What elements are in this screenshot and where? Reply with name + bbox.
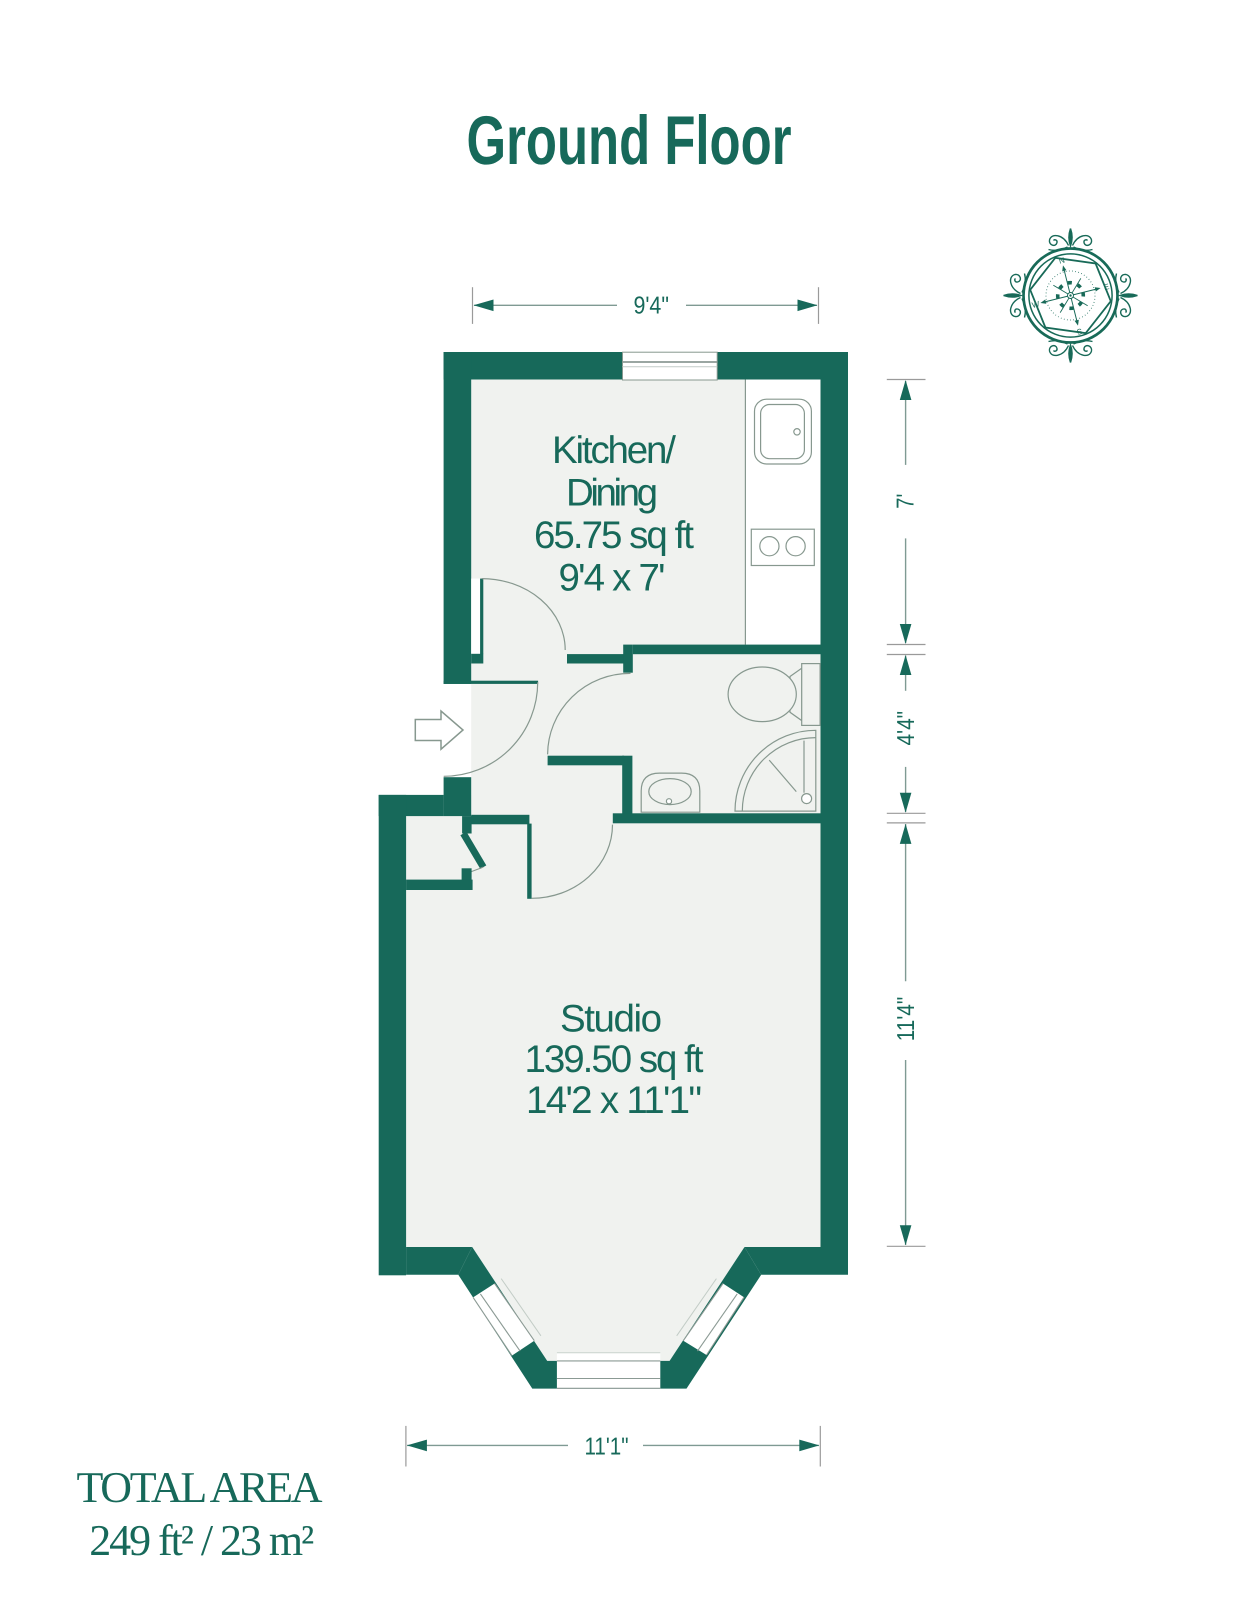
svg-text:249 ft² / 23 m²: 249 ft² / 23 m² bbox=[89, 1516, 314, 1565]
svg-text:65.75 sq ft: 65.75 sq ft bbox=[534, 514, 694, 557]
svg-text:11'4": 11'4" bbox=[893, 997, 920, 1042]
svg-text:N: N bbox=[1058, 255, 1066, 265]
svg-text:E: E bbox=[1103, 282, 1110, 292]
svg-text:139.50 sq ft: 139.50 sq ft bbox=[525, 1038, 704, 1081]
svg-text:S: S bbox=[1076, 327, 1083, 337]
svg-text:Ground Floor: Ground Floor bbox=[467, 102, 792, 179]
svg-text:TOTAL AREA: TOTAL AREA bbox=[77, 1463, 323, 1512]
svg-text:Studio: Studio bbox=[560, 998, 662, 1041]
svg-text:9'4": 9'4" bbox=[633, 293, 669, 320]
svg-text:4'4": 4'4" bbox=[893, 711, 920, 746]
svg-text:11'1": 11'1" bbox=[585, 1434, 629, 1461]
svg-text:7': 7' bbox=[893, 494, 920, 509]
svg-text:14'2 x 11'1": 14'2 x 11'1" bbox=[526, 1079, 702, 1122]
svg-text:Kitchen/: Kitchen/ bbox=[552, 429, 676, 472]
svg-text:Dining: Dining bbox=[566, 472, 658, 515]
svg-text:W: W bbox=[1031, 299, 1041, 310]
svg-text:9'4 x 7': 9'4 x 7' bbox=[559, 557, 666, 600]
